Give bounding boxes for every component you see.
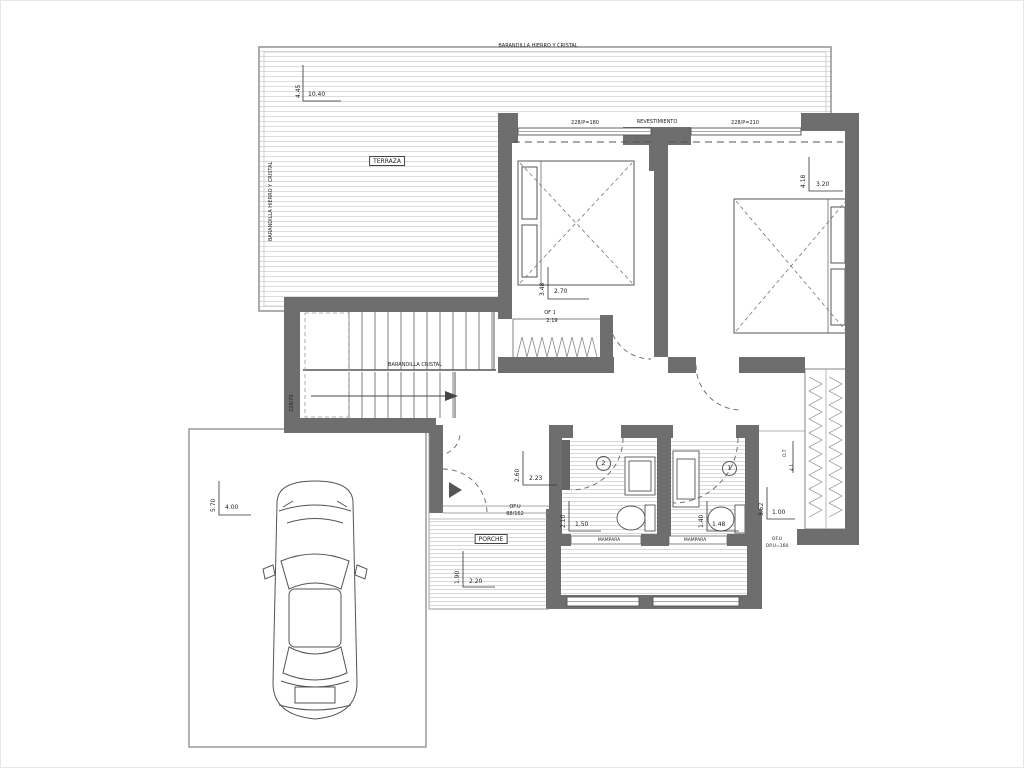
dim-ofu-right: OP.U=160 <box>766 544 789 549</box>
label-terraza: TERRAZA <box>369 156 405 166</box>
dim-porch-v: 1.90 <box>454 571 461 584</box>
dim-bath1-v: 1.40 <box>698 515 705 528</box>
wardrobe-bed1 <box>513 319 601 361</box>
dim-porch-h: 2.20 <box>469 578 482 585</box>
dim-bed2-h: 3.20 <box>816 181 829 188</box>
dim-garage-v: 5.70 <box>210 499 217 512</box>
label-ofu-entry: OF.U <box>509 504 520 510</box>
dim-bath2-v: 2.10 <box>560 515 567 528</box>
dim-dress-v: 3.52 <box>758 503 765 516</box>
dim-bath1-h: 1.48 <box>712 521 725 528</box>
dim-bath2-h: 1.50 <box>575 521 588 528</box>
label-railing-stairs: BARANDILLA CRISTAL <box>388 362 442 368</box>
label-railing-left: BARANDILLA HIERRO Y CRISTAL <box>268 162 274 241</box>
label-window-left: 228/P=180 <box>571 120 599 126</box>
label-cladding: REVESTIMIENTO <box>637 119 678 125</box>
dim-garage-h: 4.00 <box>225 504 238 511</box>
dim-hall-v: 2.60 <box>514 469 521 482</box>
label-railing-top: BARANDILLA HIERRO Y CRISTAL <box>498 43 577 49</box>
label-ofu-right: OF.U <box>772 537 782 542</box>
bath2-number: 2 <box>596 456 611 471</box>
floor-plan-drawing <box>1 1 1024 768</box>
label-porche: PORCHE <box>475 534 508 544</box>
dim-hall-h: 2.23 <box>529 475 542 482</box>
closet-bedroom2 <box>805 369 847 529</box>
label-window-right: 228/P=210 <box>731 120 759 126</box>
dim-stairs: 228/70 <box>289 394 295 412</box>
entry-step-mark <box>449 482 462 498</box>
dim-bed1-v: 3.48 <box>539 283 546 296</box>
dim-bed1-h: 2.70 <box>554 288 567 295</box>
floor-plan-page: BARANDILLA HIERRO Y CRISTAL BARANDILLA H… <box>0 0 1024 768</box>
label-closet-ot: O.T <box>783 449 788 457</box>
label-of1: OF 1 <box>544 310 556 316</box>
dim-terrace-v: 4.45 <box>295 85 302 98</box>
label-mampara-2: MAMPARA <box>684 538 706 543</box>
bed-2 <box>734 199 848 333</box>
bed-1 <box>518 161 634 285</box>
dim-bed2-v: 4.18 <box>800 175 807 188</box>
bath1-number: 1 <box>722 461 737 476</box>
label-mampara-1: MAMPARA <box>598 538 620 543</box>
dim-terrace-h: 10.40 <box>308 91 325 98</box>
dim-of1: 2.19 <box>546 318 557 324</box>
dim-dress-h: 1.00 <box>772 509 785 516</box>
dim-ofu-entry: 88/162 <box>506 511 524 517</box>
dim-closet: 4.1 <box>790 464 795 471</box>
